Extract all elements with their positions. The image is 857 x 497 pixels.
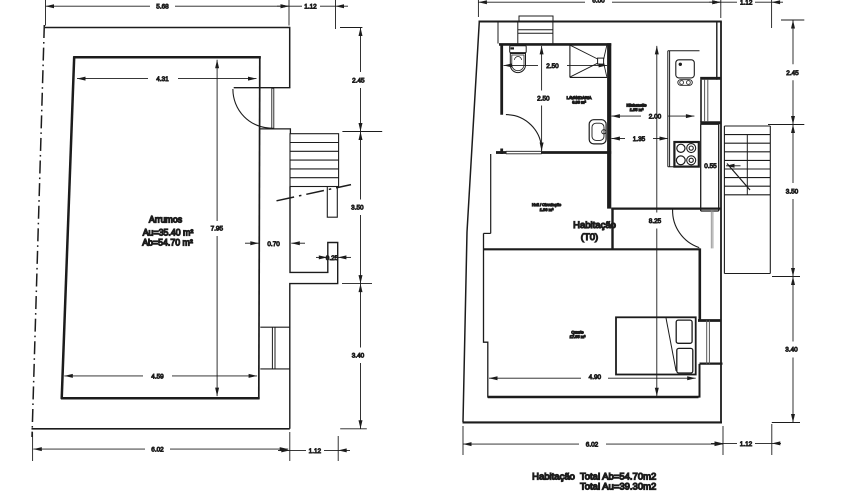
svg-text:1.12: 1.12 bbox=[740, 0, 753, 7]
svg-text:Ab=54.70 m²: Ab=54.70 m² bbox=[142, 237, 193, 247]
svg-text:2.50: 2.50 bbox=[546, 63, 559, 70]
svg-text:1.12: 1.12 bbox=[309, 448, 322, 455]
svg-text:(T0): (T0) bbox=[581, 232, 598, 243]
svg-text:5.68: 5.68 bbox=[156, 4, 169, 11]
svg-text:1.95 m²: 1.95 m² bbox=[630, 107, 644, 112]
svg-text:1.96 m²: 1.96 m² bbox=[540, 207, 554, 212]
svg-text:1.12: 1.12 bbox=[740, 441, 753, 448]
svg-text:1.35: 1.35 bbox=[633, 136, 646, 143]
svg-text:6.80 m²: 6.80 m² bbox=[572, 100, 586, 105]
svg-text:2.50: 2.50 bbox=[537, 95, 550, 102]
svg-text:2.00: 2.00 bbox=[649, 114, 662, 121]
svg-text:Total Au=39.30m2: Total Au=39.30m2 bbox=[580, 482, 656, 493]
svg-text:6.02: 6.02 bbox=[151, 447, 164, 454]
svg-text:Au=35.40 m²: Au=35.40 m² bbox=[143, 227, 194, 237]
svg-text:Arrumos: Arrumos bbox=[149, 215, 183, 225]
svg-text:4.59: 4.59 bbox=[151, 373, 164, 380]
svg-text:2.45: 2.45 bbox=[786, 70, 799, 77]
svg-text:4.90: 4.90 bbox=[589, 374, 602, 381]
svg-text:17.05 m²: 17.05 m² bbox=[570, 334, 586, 339]
svg-text:3.50: 3.50 bbox=[351, 205, 364, 212]
svg-text:3.50: 3.50 bbox=[786, 189, 799, 196]
svg-text:3.40: 3.40 bbox=[785, 347, 798, 354]
svg-text:0.55: 0.55 bbox=[704, 163, 717, 170]
svg-text:2.45: 2.45 bbox=[352, 77, 365, 84]
svg-text:0.25: 0.25 bbox=[326, 255, 339, 262]
svg-text:8.25: 8.25 bbox=[649, 218, 662, 225]
svg-text:3.40: 3.40 bbox=[352, 353, 365, 360]
svg-text:6.02: 6.02 bbox=[586, 442, 599, 449]
svg-text:7.95: 7.95 bbox=[211, 226, 224, 233]
svg-text:1.12: 1.12 bbox=[304, 4, 317, 11]
svg-text:0.70: 0.70 bbox=[267, 241, 280, 248]
svg-text:Habitação: Habitação bbox=[573, 220, 616, 231]
svg-text:6.00: 6.00 bbox=[592, 0, 605, 4]
svg-text:Habitação: Habitação bbox=[532, 471, 575, 482]
svg-text:4.31: 4.31 bbox=[156, 76, 169, 83]
